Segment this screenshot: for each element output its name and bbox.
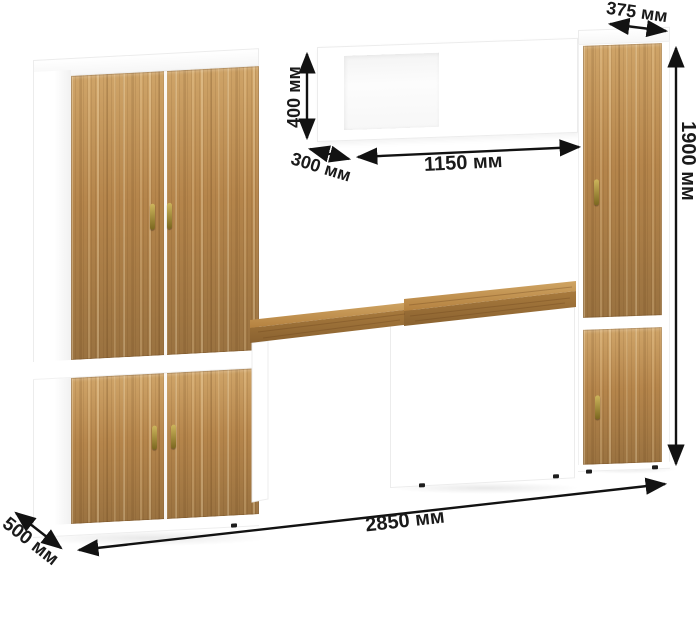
cabinet-foot (553, 474, 559, 478)
product-dimension-diagram: 375 мм 400 мм 300 мм 1150 мм 1900 мм 285… (0, 0, 700, 641)
dimension-label-total-height: 1900 мм (677, 120, 699, 202)
dimension-label-wall-shelf-width: 1150 мм (423, 150, 502, 176)
door-handle (150, 204, 155, 230)
wall-shelf (317, 38, 578, 142)
dimension-label-total-width: 2850 мм (361, 505, 449, 537)
desk-top-right (404, 281, 576, 311)
dimension-label-top-depth: 375 мм (605, 0, 669, 27)
cabinet-foot (419, 483, 425, 487)
left-wardrobe (33, 48, 262, 538)
cabinet-foot (47, 535, 53, 539)
wall-shelf-compartment (344, 53, 439, 130)
door-gap (164, 373, 167, 519)
door-handle (167, 203, 172, 229)
cabinet-foot (231, 523, 237, 527)
desk-top-left (250, 302, 412, 328)
desk-edge-left (250, 309, 412, 343)
wall-shelf-compartments (344, 48, 571, 130)
left-wardrobe-side-panel (33, 70, 71, 526)
dimension-label-wall-shelf-height: 400 мм (283, 64, 305, 130)
door-handle (594, 179, 599, 205)
dimension-label-wall-shelf-depth: 300 мм (287, 147, 355, 187)
door-handle (171, 425, 176, 449)
cube-shelf (390, 306, 575, 488)
left-wardrobe-lower-doors (71, 368, 259, 524)
right-cabinet (578, 27, 670, 472)
cabinet-foot (652, 465, 658, 469)
left-wardrobe-upper-doors (71, 66, 259, 360)
door-handle (595, 395, 600, 419)
door-handle (152, 426, 157, 450)
cabinet-foot (586, 470, 592, 474)
cube-shelf-compartments (423, 325, 543, 473)
